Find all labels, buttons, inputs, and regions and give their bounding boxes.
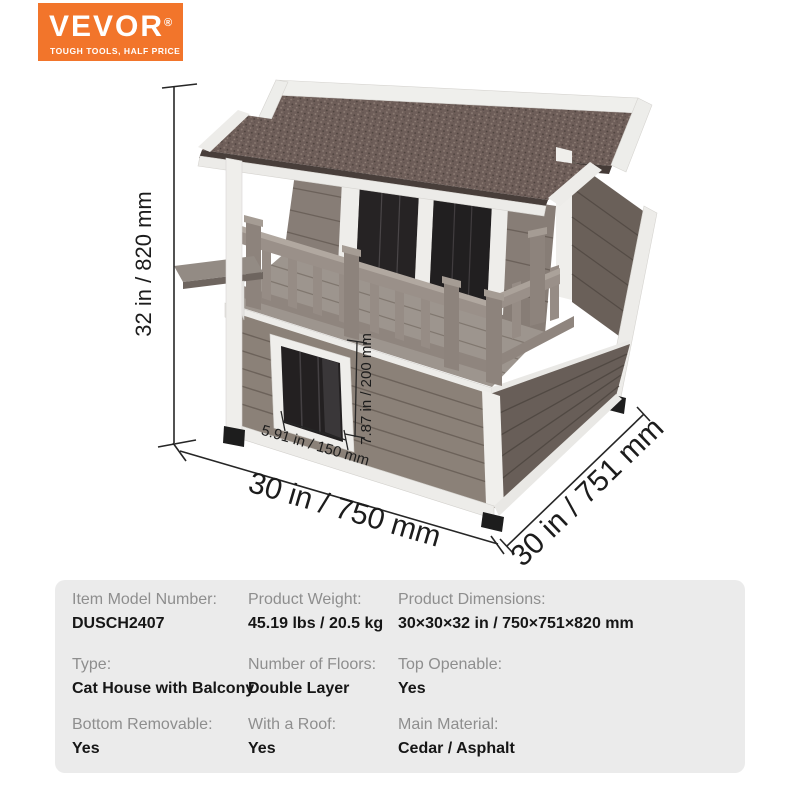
spec-label: Bottom Removable: xyxy=(72,715,248,735)
front-width-tick-right xyxy=(491,536,504,554)
spec-item-weight: Product Weight: 45.19 lbs / 20.5 kg xyxy=(248,590,398,655)
spec-label: Number of Floors: xyxy=(248,655,398,675)
spec-value: Yes xyxy=(248,739,398,759)
spec-label: Type: xyxy=(72,655,248,675)
front-right-foot xyxy=(481,512,504,532)
spec-label: Main Material: xyxy=(398,715,735,735)
spec-label: Top Openable: xyxy=(398,655,735,675)
spec-item-type: Type: Cat House with Balcony xyxy=(72,655,248,715)
front-left-post xyxy=(226,158,242,430)
height-dim-tick-top xyxy=(162,84,197,88)
spec-item-dimensions: Product Dimensions: 30×30×32 in / 750×75… xyxy=(398,590,735,655)
railing-right-post xyxy=(530,230,545,326)
product-spec-page: VEVOR® TOUGH TOOLS, HALF PRICE xyxy=(0,0,800,800)
spec-label: Product Dimensions: xyxy=(398,590,735,610)
spec-value: Yes xyxy=(72,739,248,759)
height-dim-label: 32 in / 820 mm xyxy=(131,191,156,337)
spec-value: Yes xyxy=(398,679,735,699)
spec-value: 45.19 lbs / 20.5 kg xyxy=(248,614,398,634)
spec-value: Cedar / Asphalt xyxy=(398,739,735,759)
spec-value: DUSCH2407 xyxy=(72,614,248,634)
spec-value: Cat House with Balcony xyxy=(72,679,248,699)
spec-label: Item Model Number: xyxy=(72,590,248,610)
spec-panel: Item Model Number: DUSCH2407 Product Wei… xyxy=(55,580,745,773)
spec-label: Product Weight: xyxy=(248,590,398,610)
spec-item-model-number: Item Model Number: DUSCH2407 xyxy=(72,590,248,655)
height-dim-tick-bottom xyxy=(158,440,196,447)
front-left-leg xyxy=(223,158,245,447)
spec-item-top-openable: Top Openable: Yes xyxy=(398,655,735,715)
door-flap-panel xyxy=(322,358,341,438)
spec-item-material: Main Material: Cedar / Asphalt xyxy=(398,715,735,773)
spec-label: With a Roof: xyxy=(248,715,398,735)
spec-value: 30×30×32 in / 750×751×820 mm xyxy=(398,614,735,634)
spec-value: Double Layer xyxy=(248,679,398,699)
spec-item-bottom-removable: Bottom Removable: Yes xyxy=(72,715,248,773)
spec-item-floors: Number of Floors: Double Layer xyxy=(248,655,398,715)
spec-item-roof: With a Roof: Yes xyxy=(248,715,398,773)
door-height-dim-label: 7.87 in / 200 mm xyxy=(358,333,375,445)
